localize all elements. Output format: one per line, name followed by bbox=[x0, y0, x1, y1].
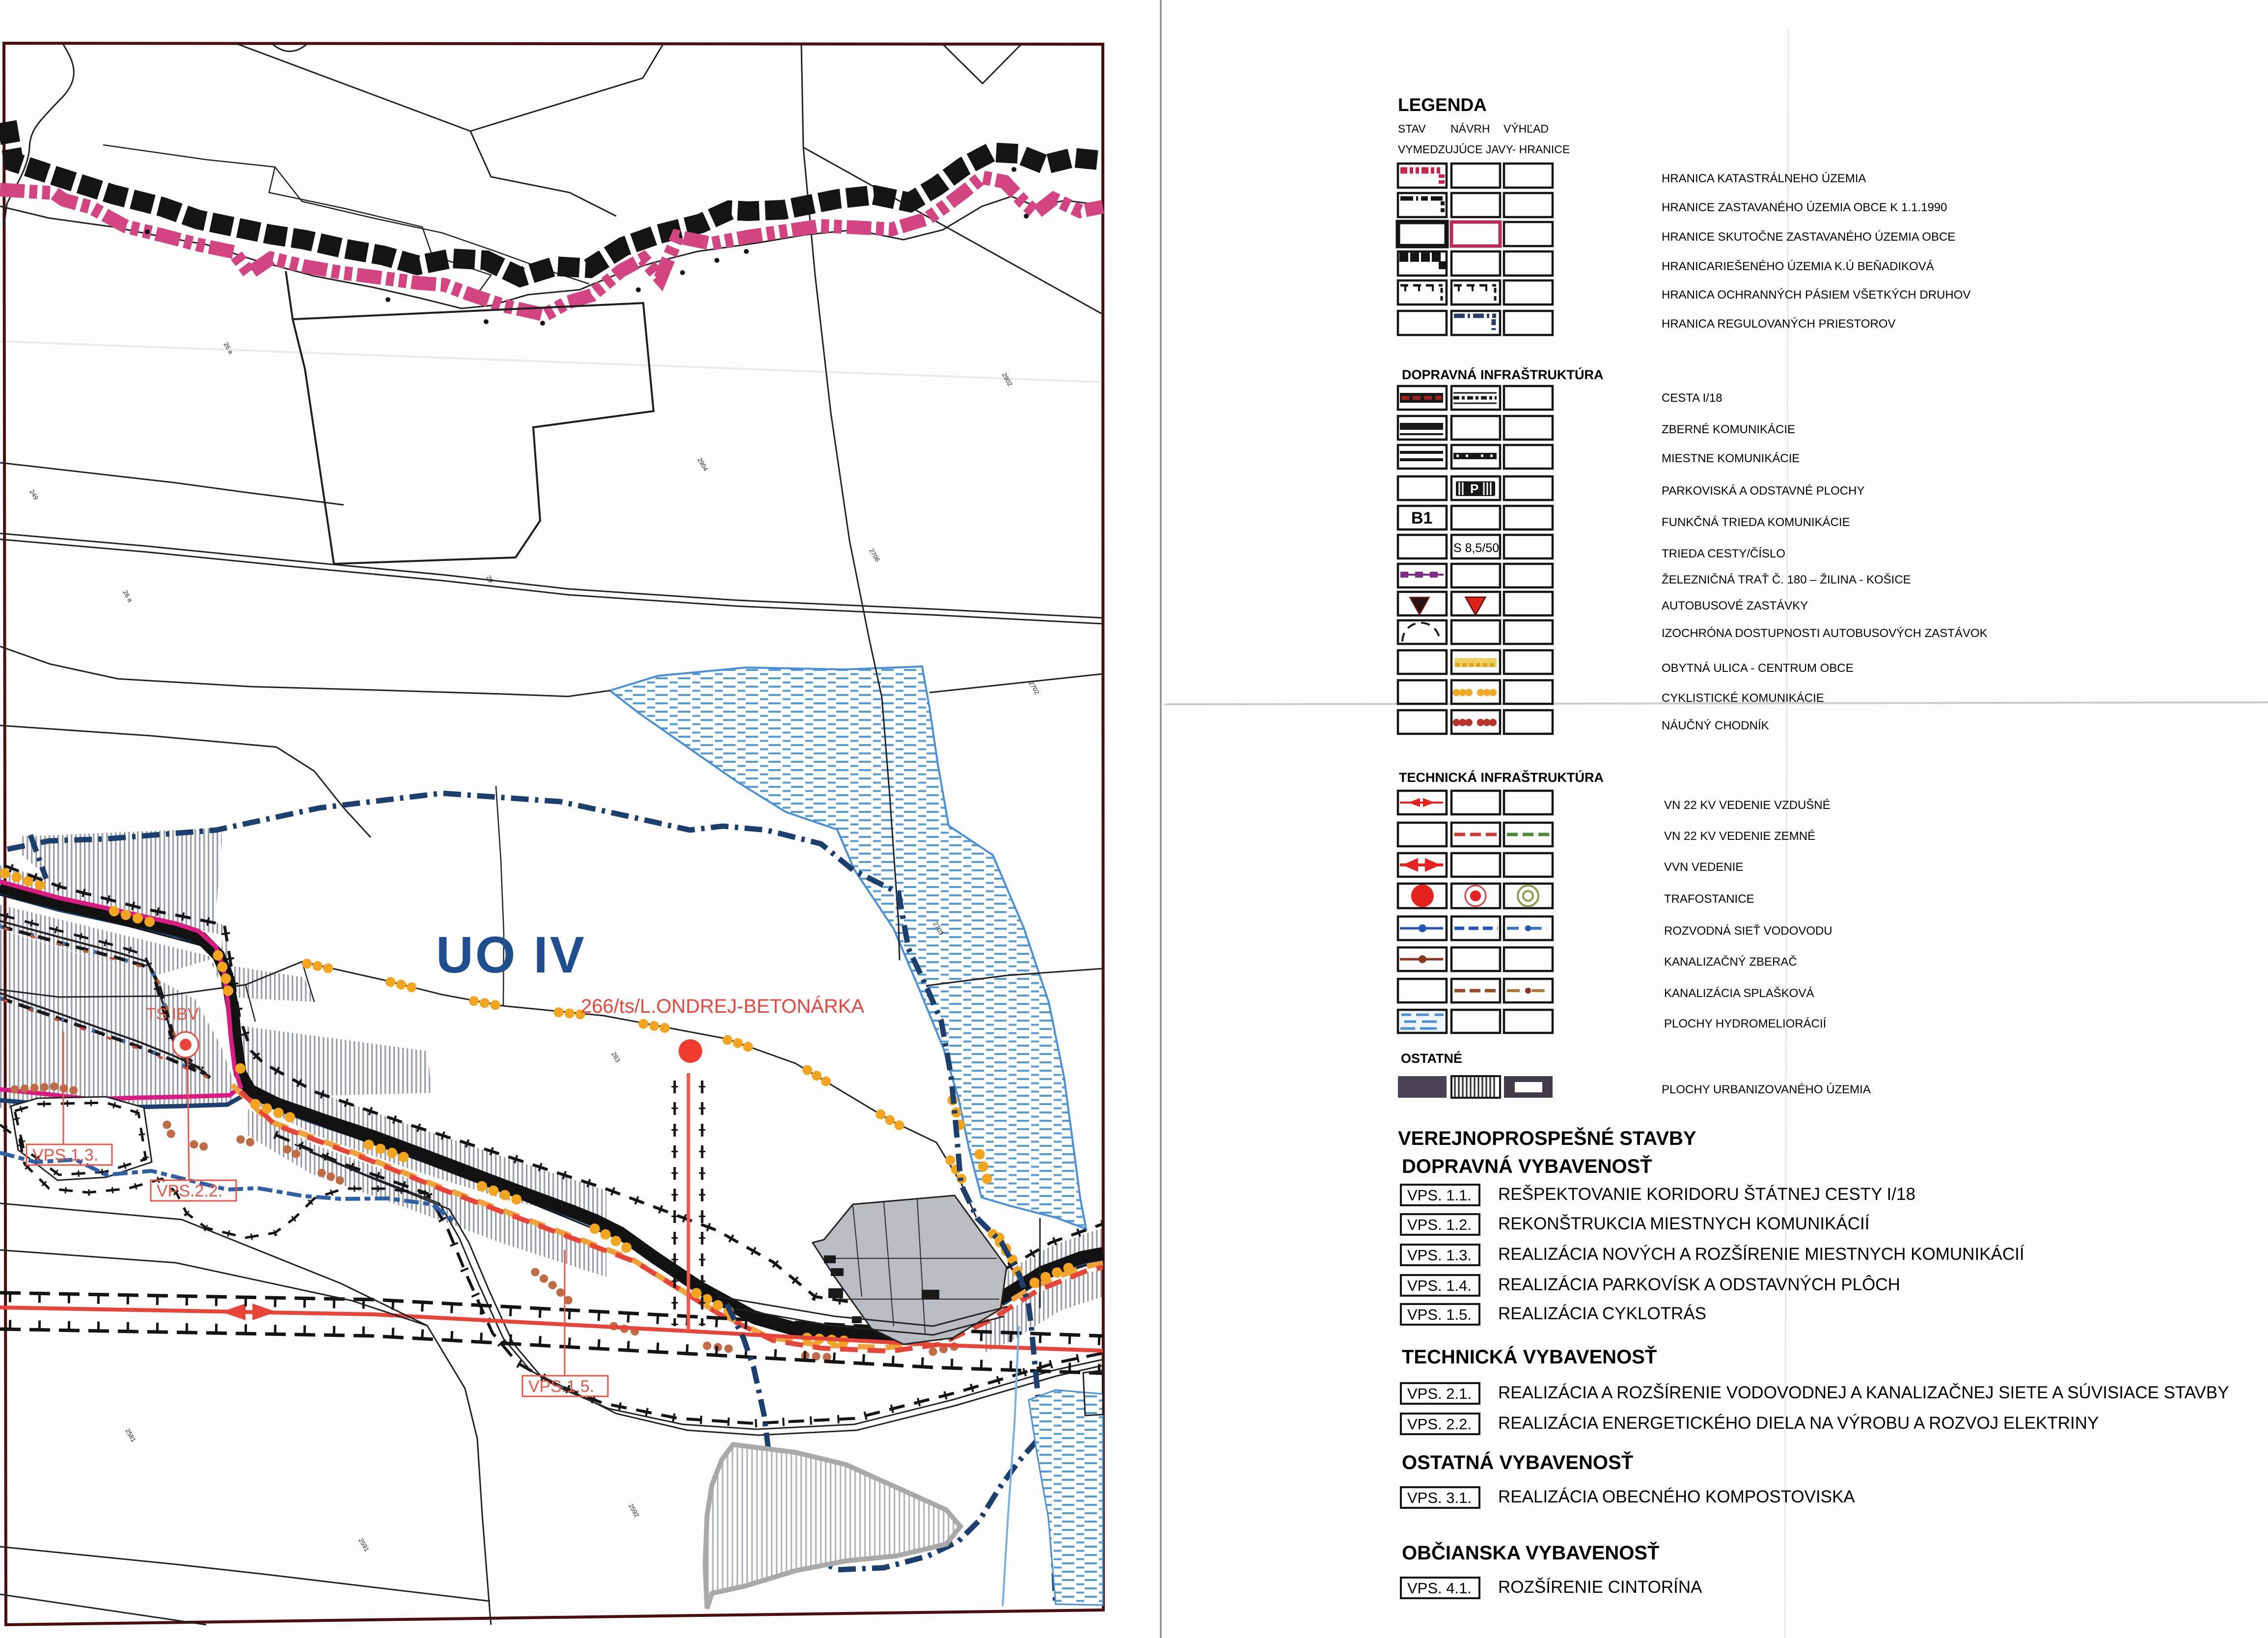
svg-text:OSTATNÁ VYBAVENOSŤ: OSTATNÁ VYBAVENOSŤ bbox=[1402, 1451, 1633, 1473]
svg-text:VVN VEDENIE: VVN VEDENIE bbox=[1664, 861, 1743, 874]
svg-text:ROZVODNÁ SIEŤ VODOVODU: ROZVODNÁ SIEŤ VODOVODU bbox=[1664, 924, 1832, 938]
svg-text:VPS. 1.2.: VPS. 1.2. bbox=[1407, 1216, 1472, 1233]
svg-text:HRANICE ZASTAVANÉHO ÚZEMIA OBC: HRANICE ZASTAVANÉHO ÚZEMIA OBCE K 1.1.19… bbox=[1662, 201, 1947, 214]
svg-text:2581: 2581 bbox=[124, 1427, 137, 1444]
svg-text:TS IBV: TS IBV bbox=[146, 1005, 199, 1024]
svg-text:KANALIZAČNÝ ZBERAČ: KANALIZAČNÝ ZBERAČ bbox=[1664, 955, 1797, 969]
svg-text:KANALIZÁCIA SPLAŠKOVÁ: KANALIZÁCIA SPLAŠKOVÁ bbox=[1664, 986, 1814, 1000]
svg-text:ŽELEZNIČNÁ TRAŤ Č. 180 – ŽILIN: ŽELEZNIČNÁ TRAŤ Č. 180 – ŽILINA - KOŠICE bbox=[1662, 573, 1911, 586]
svg-text:DOPRAVNÁ VYBAVENOSŤ: DOPRAVNÁ VYBAVENOSŤ bbox=[1402, 1155, 1652, 1177]
svg-text:VPS. 4.1.: VPS. 4.1. bbox=[1407, 1580, 1472, 1597]
svg-text:TRIEDA CESTY/ČÍSLO: TRIEDA CESTY/ČÍSLO bbox=[1662, 547, 1785, 560]
svg-text:VPS.1.3.: VPS.1.3. bbox=[32, 1146, 98, 1165]
svg-text:29: 29 bbox=[485, 574, 494, 584]
svg-text:2706: 2706 bbox=[868, 547, 881, 563]
svg-text:VYMEDZUJÚCE JAVY- HRANICE: VYMEDZUJÚCE JAVY- HRANICE bbox=[1398, 143, 1570, 156]
svg-text:2591: 2591 bbox=[357, 1537, 370, 1553]
svg-text:REALIZÁCIA ENERGETICKÉHO DIELA: REALIZÁCIA ENERGETICKÉHO DIELA NA VÝROBU… bbox=[1498, 1414, 2099, 1433]
svg-text:HRANICARIEŠENÉHO ÚZEMIA K.Ú BE: HRANICARIEŠENÉHO ÚZEMIA K.Ú BEŇADIKOVÁ bbox=[1662, 259, 1934, 273]
svg-text:26 a: 26 a bbox=[121, 589, 134, 604]
svg-text:NÁUČNÝ CHODNÍK: NÁUČNÝ CHODNÍK bbox=[1662, 719, 1769, 732]
svg-text:VPS.2.2.: VPS.2.2. bbox=[157, 1182, 222, 1200]
svg-text:CESTA I/18: CESTA I/18 bbox=[1662, 391, 1722, 405]
svg-text:VPS. 1.1.: VPS. 1.1. bbox=[1407, 1187, 1472, 1204]
svg-text:REALIZÁCIA CYKLOTRÁS: REALIZÁCIA CYKLOTRÁS bbox=[1498, 1304, 1706, 1323]
svg-text:TECHNICKÁ INFRAŠTRUKTÚRA: TECHNICKÁ INFRAŠTRUKTÚRA bbox=[1399, 770, 1604, 785]
svg-text:TECHNICKÁ VYBAVENOSŤ: TECHNICKÁ VYBAVENOSŤ bbox=[1402, 1345, 1657, 1368]
svg-text:OBYTNÁ ULICA - CENTRUM OBCE: OBYTNÁ ULICA - CENTRUM OBCE bbox=[1662, 662, 1854, 675]
svg-text:VN 22 KV VEDENIE VZDUŠNÉ: VN 22 KV VEDENIE VZDUŠNÉ bbox=[1664, 798, 1831, 812]
svg-text:DOPRAVNÁ INFRAŠTRUKTÚRA: DOPRAVNÁ INFRAŠTRUKTÚRA bbox=[1402, 367, 1603, 382]
svg-text:P: P bbox=[1470, 481, 1478, 496]
svg-text:PLOCHY URBANIZOVANÉHO ÚZEMIA: PLOCHY URBANIZOVANÉHO ÚZEMIA bbox=[1662, 1083, 1871, 1096]
svg-text:PLOCHY HYDROMELIORÁCIÍ: PLOCHY HYDROMELIORÁCIÍ bbox=[1664, 1017, 1827, 1030]
svg-text:REALIZÁCIA PARKOVÍSK A ODSTAVN: REALIZÁCIA PARKOVÍSK A ODSTAVNÝCH PLÔCH bbox=[1498, 1275, 1900, 1294]
svg-text:2702: 2702 bbox=[1027, 680, 1040, 696]
svg-text:ZBERNÉ KOMUNIKÁCIE: ZBERNÉ KOMUNIKÁCIE bbox=[1662, 423, 1795, 436]
svg-text:IZOCHRÓNA DOSTUPNOSTI AUTOBUSO: IZOCHRÓNA DOSTUPNOSTI AUTOBUSOVÝCH ZASTÁ… bbox=[1662, 627, 1988, 640]
svg-text:VPS. 1.3.: VPS. 1.3. bbox=[1407, 1247, 1472, 1264]
svg-text:STAV: STAV bbox=[1398, 122, 1426, 135]
svg-text:LEGENDA: LEGENDA bbox=[1398, 95, 1487, 115]
svg-text:VPS. 2.2.: VPS. 2.2. bbox=[1407, 1416, 1472, 1433]
svg-text:NÁVRH: NÁVRH bbox=[1450, 122, 1490, 135]
svg-text:REŠPEKTOVANIE KORIDORU ŠTÁTNEJ: REŠPEKTOVANIE KORIDORU ŠTÁTNEJ CESTY I/1… bbox=[1498, 1185, 1915, 1204]
svg-text:VEREJNOPROSPEŠNÉ STAVBY: VEREJNOPROSPEŠNÉ STAVBY bbox=[1398, 1127, 1696, 1149]
svg-text:PARKOVISKÁ A ODSTAVNÉ PLOCHY: PARKOVISKÁ A ODSTAVNÉ PLOCHY bbox=[1662, 484, 1864, 498]
svg-text:OBČIANSKA VYBAVENOSŤ: OBČIANSKA VYBAVENOSŤ bbox=[1402, 1541, 1660, 1564]
svg-text:VÝHĽAD: VÝHĽAD bbox=[1503, 122, 1549, 135]
svg-text:MIESTNE KOMUNIKÁCIE: MIESTNE KOMUNIKÁCIE bbox=[1662, 452, 1800, 465]
svg-text:S 8,5/50: S 8,5/50 bbox=[1453, 541, 1499, 555]
svg-text:FUNKČNÁ TRIEDA KOMUNIKÁCIE: FUNKČNÁ TRIEDA KOMUNIKÁCIE bbox=[1662, 515, 1850, 529]
svg-text:263: 263 bbox=[610, 1051, 622, 1063]
svg-text:HRANICE SKUTOČNE ZASTAVANÉHO Ú: HRANICE SKUTOČNE ZASTAVANÉHO ÚZEMIA OBCE bbox=[1662, 230, 1955, 244]
svg-text:B1: B1 bbox=[1411, 509, 1432, 527]
svg-text:VN 22 KV VEDENIE ZEMNÉ: VN 22 KV VEDENIE ZEMNÉ bbox=[1664, 830, 1815, 843]
svg-text:266/ts/L.ONDREJ-BETONÁRKA: 266/ts/L.ONDREJ-BETONÁRKA bbox=[581, 995, 865, 1017]
svg-text:HRANICA REGULOVANÝCH PRIESTORO: HRANICA REGULOVANÝCH PRIESTOROV bbox=[1662, 317, 1896, 331]
svg-text:VPS. 2.1.: VPS. 2.1. bbox=[1407, 1385, 1472, 1402]
svg-text:VPS. 1.4.: VPS. 1.4. bbox=[1407, 1277, 1472, 1294]
svg-text:249: 249 bbox=[28, 488, 40, 501]
svg-text:VPS. 1.5.: VPS. 1.5. bbox=[1407, 1306, 1472, 1323]
svg-text:AUTOBUSOVÉ ZASTÁVKY: AUTOBUSOVÉ ZASTÁVKY bbox=[1662, 599, 1808, 612]
svg-text:REALIZÁCIA OBECNÉHO KOMPOSTOVI: REALIZÁCIA OBECNÉHO KOMPOSTOVISKA bbox=[1498, 1487, 1855, 1506]
svg-text:2592: 2592 bbox=[627, 1502, 640, 1519]
svg-text:REALIZÁCIA NOVÝCH A ROZŠÍRENIE: REALIZÁCIA NOVÝCH A ROZŠÍRENIE MIESTNYCH… bbox=[1498, 1245, 2024, 1264]
svg-text:REALIZÁCIA A ROZŠÍRENIE VODOV: REALIZÁCIA A ROZŠÍRENIE VODOVODNEJ A KAN… bbox=[1498, 1383, 2229, 1402]
svg-text:UO IV: UO IV bbox=[436, 926, 586, 984]
svg-text:VPS.1.5.: VPS.1.5. bbox=[528, 1377, 594, 1396]
svg-text:HRANICA KATASTRÁLNEHO ÚZEMIA: HRANICA KATASTRÁLNEHO ÚZEMIA bbox=[1662, 172, 1866, 185]
svg-text:26 a: 26 a bbox=[222, 341, 235, 356]
svg-text:VPS. 3.1.: VPS. 3.1. bbox=[1407, 1489, 1472, 1506]
svg-text:REKONŠTRUKCIA MIESTNYCH KOMUNI: REKONŠTRUKCIA MIESTNYCH KOMUNIKÁCIÍ bbox=[1498, 1214, 1870, 1233]
svg-text:CYKLISTICKÉ KOMUNIKÁCIE: CYKLISTICKÉ KOMUNIKÁCIE bbox=[1662, 692, 1824, 705]
svg-text:HRANICA OCHRANNÝCH PÁSIEM VŠET: HRANICA OCHRANNÝCH PÁSIEM VŠETKÝCH DRUHO… bbox=[1662, 288, 1970, 302]
svg-text:TRAFOSTANICE: TRAFOSTANICE bbox=[1664, 892, 1754, 906]
svg-text:OSTATNÉ: OSTATNÉ bbox=[1401, 1051, 1462, 1066]
svg-text:ROZŠÍRENIE CINTORÍNA: ROZŠÍRENIE CINTORÍNA bbox=[1498, 1578, 1702, 1597]
svg-text:2904: 2904 bbox=[696, 456, 709, 472]
